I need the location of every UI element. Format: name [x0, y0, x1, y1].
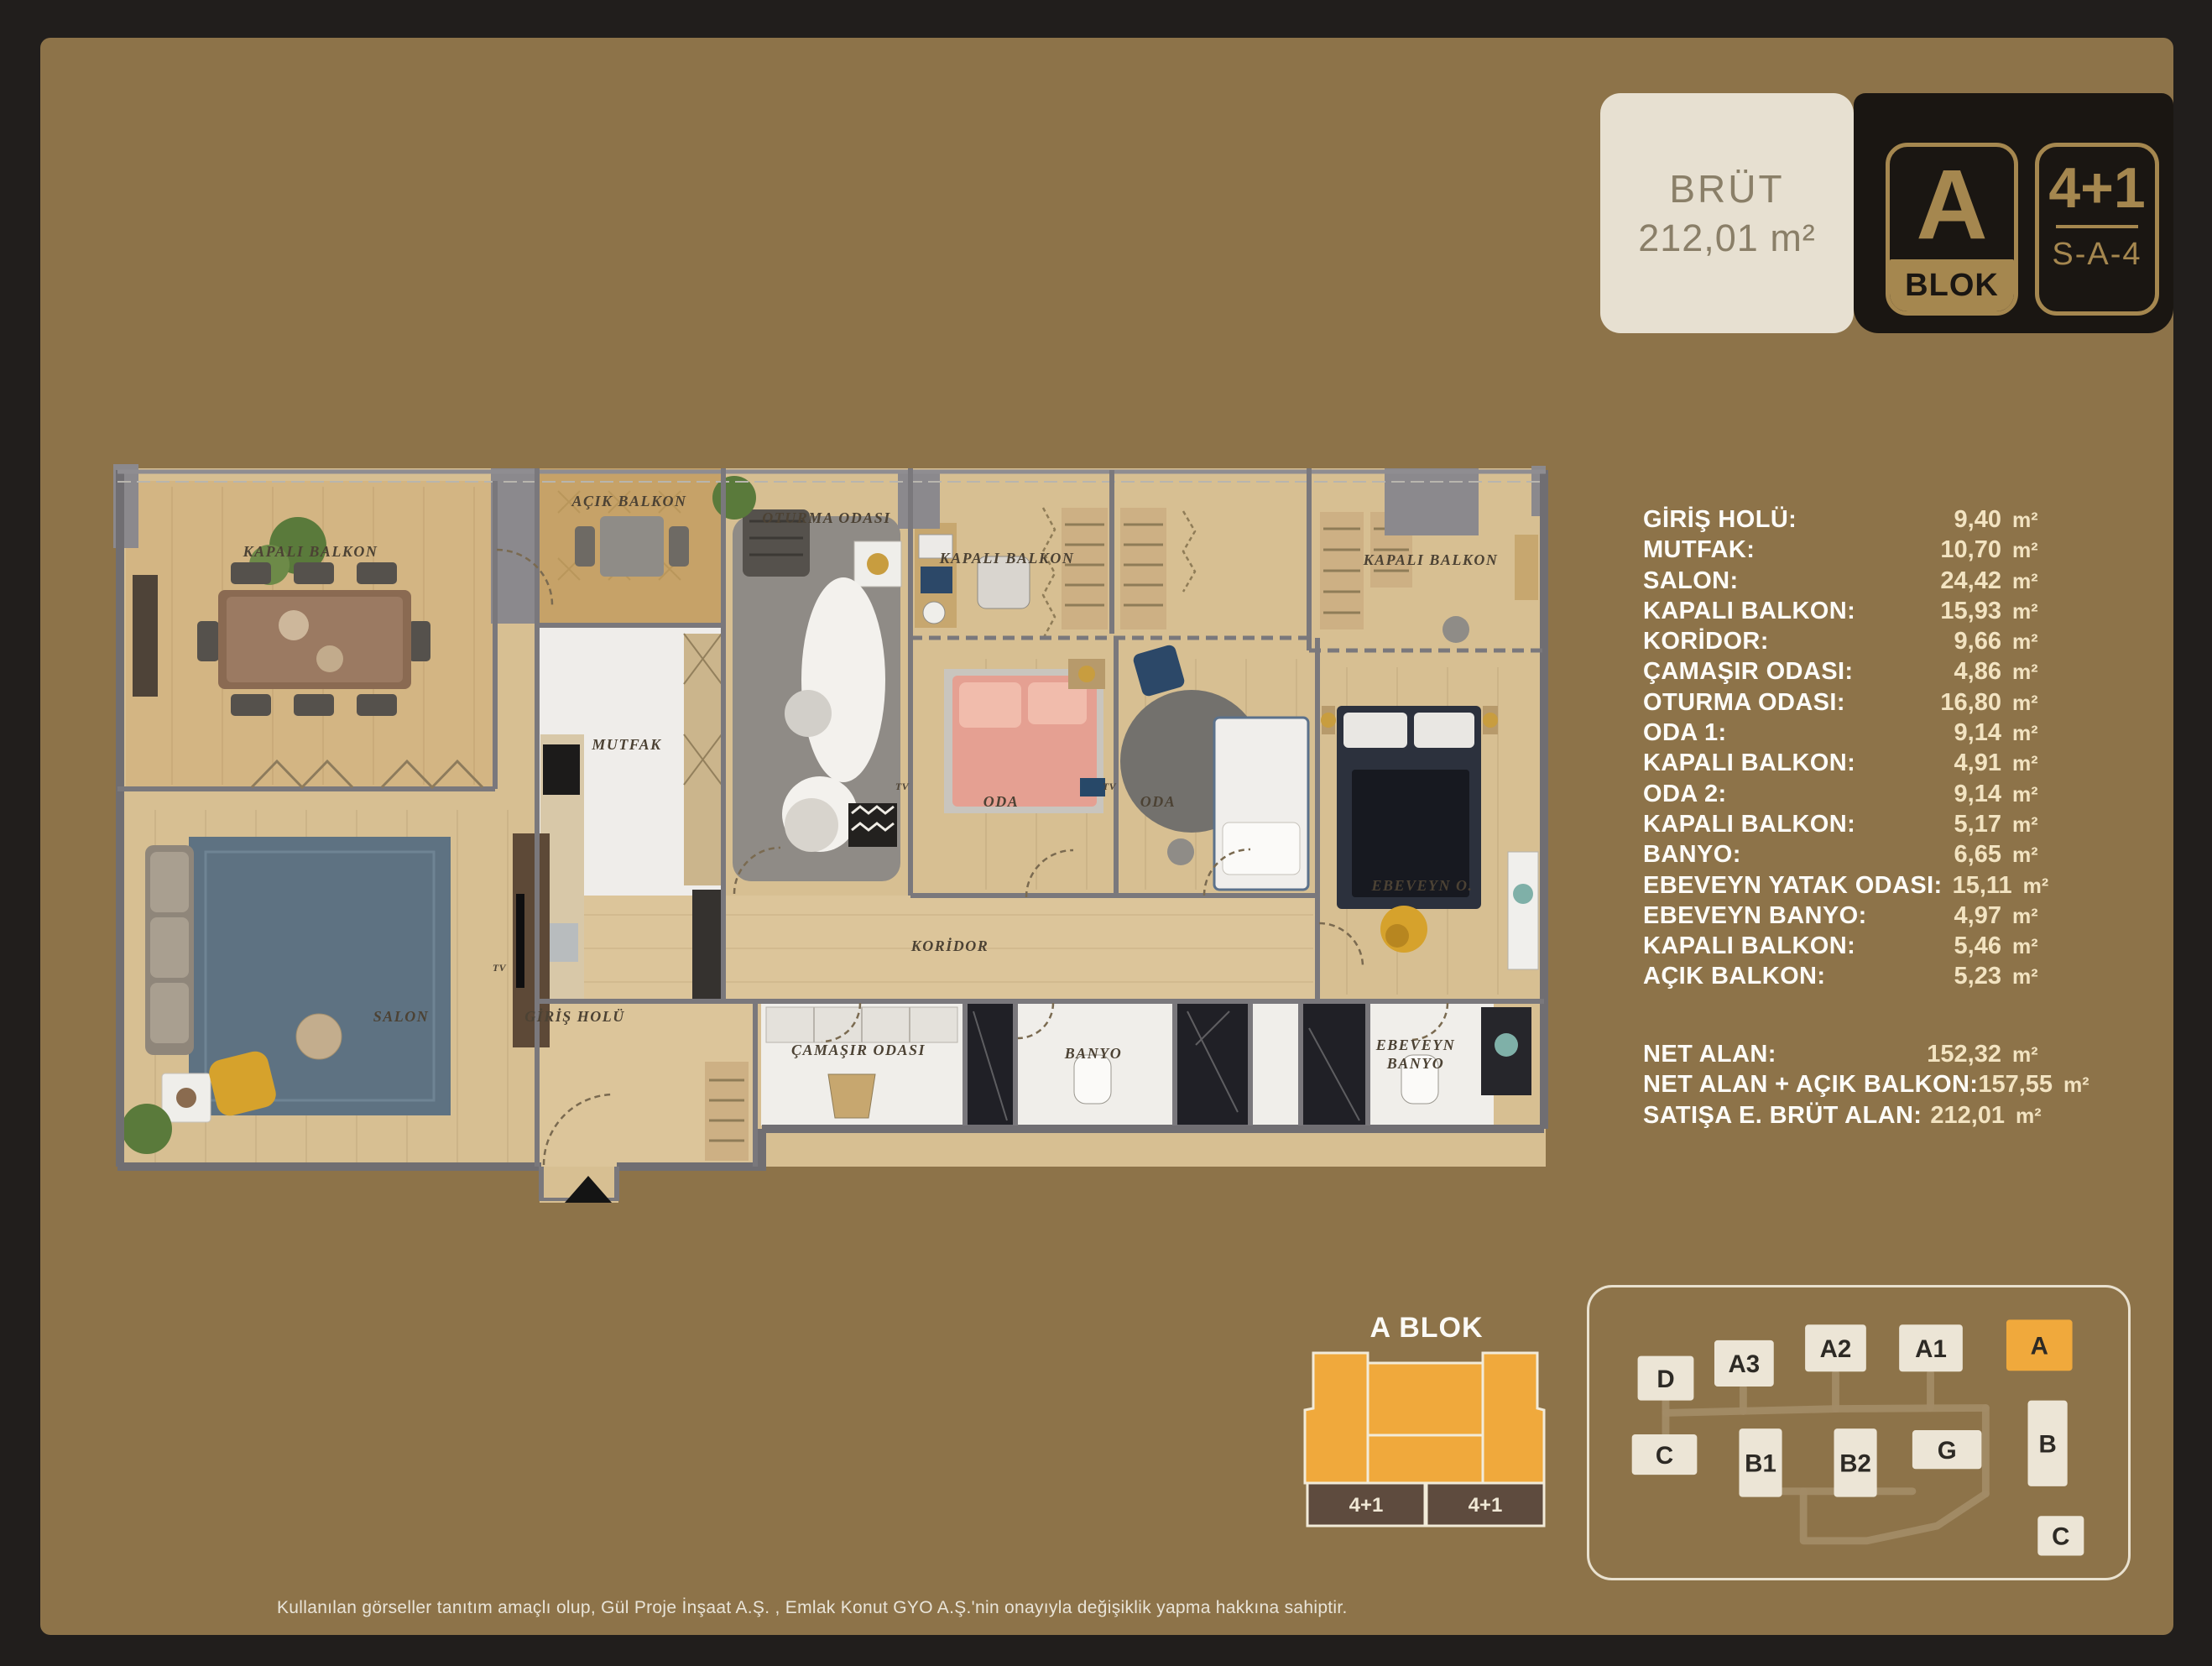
site-building-label: A3 [1729, 1350, 1761, 1378]
sofa-cushion [150, 852, 189, 912]
pillow [1223, 823, 1300, 875]
site-building-b1: B1 [1739, 1428, 1782, 1497]
room-area-unit: m² [2012, 875, 2061, 899]
room-row: SALON:24,42m² [1643, 567, 2061, 598]
block-footprint-title: A BLOK [1292, 1312, 1561, 1345]
room-area-unit: m² [2005, 1105, 2061, 1129]
room-label: AÇIK BALKON: [1643, 963, 1912, 990]
room-label: OTURMA ODASI: [1643, 689, 1912, 717]
room-row: KORİDOR:9,66m² [1643, 628, 2061, 658]
marble-coffee-table [785, 690, 832, 737]
room-area-unit: m² [2001, 600, 2061, 624]
balcony-table [600, 516, 664, 577]
area-summary-list: NET ALAN:152,32m²NET ALAN + AÇIK BALKON:… [1643, 1041, 2061, 1132]
gross-area-label: BRÜT [1669, 166, 1784, 212]
plan-room-label: AÇIK BALKON [571, 493, 686, 509]
room-label: KAPALI BALKON: [1643, 932, 1912, 960]
room-row: BANYO:6,65m² [1643, 841, 2061, 871]
block-word: BLOK [1890, 259, 2014, 311]
plan-room-label: EBEVEYN O. [1370, 877, 1473, 894]
room-area-unit: m² [2053, 1073, 2089, 1098]
room-row: MUTFAK:10,70m² [1643, 536, 2061, 567]
site-building-c: C [1632, 1434, 1698, 1475]
lamp [1321, 713, 1336, 728]
room-label: EBEVEYN BANYO: [1643, 902, 1912, 930]
room-label: KORİDOR: [1643, 628, 1912, 655]
room-area-value: 5,23 [1912, 963, 2001, 990]
plan-room-label: OTURMA ODASI [762, 509, 891, 526]
tv-icon [1080, 778, 1105, 796]
stool [923, 602, 945, 624]
lamp [1483, 713, 1498, 728]
plan-room-label: BANYO [1064, 1045, 1123, 1062]
room-label: KAPALI BALKON: [1643, 749, 1912, 777]
unit-box-label: 4+1 [1469, 1494, 1503, 1517]
laundry-stool [828, 1074, 875, 1118]
room-row: ODA 2:9,14m² [1643, 781, 2061, 811]
room-area-value: 6,65 [1912, 841, 2001, 869]
room-row: EBEVEYN YATAK ODASI:15,11m² [1643, 872, 2061, 902]
site-building-b2: B2 [1834, 1428, 1877, 1497]
room-label: SATIŞA E. BRÜT ALAN: [1643, 1102, 1922, 1130]
pillow [959, 682, 1021, 728]
sofa-cushion [150, 983, 189, 1043]
balcony-chair [669, 526, 689, 567]
room-label: ÇAMAŞIR ODASI: [1643, 658, 1912, 686]
site-building-label: G [1938, 1437, 1957, 1465]
room-area-unit: m² [2001, 570, 2061, 594]
table-setting [316, 645, 343, 672]
bath-white-strip [1250, 1001, 1301, 1125]
room-row: AÇIK BALKON:5,23m² [1643, 963, 2061, 993]
cooktop [543, 744, 580, 795]
toilet-icon [1074, 1055, 1111, 1104]
room-row: OTURMA ODASI:16,80m² [1643, 689, 2061, 719]
plan-room-label: KAPALI BALKON [939, 550, 1075, 567]
badge-panel: A BLOK 4+1 S-A-4 [1854, 93, 2173, 333]
footprint-right-wing [1483, 1353, 1544, 1483]
site-building-label: C [2052, 1523, 2069, 1551]
room-area-value: 10,70 [1912, 536, 2001, 564]
room-area-value: 9,66 [1912, 628, 2001, 655]
vanity [1508, 852, 1538, 969]
tv-icon [516, 894, 524, 988]
plan-room-label: TV [895, 781, 910, 792]
room-row: EBEVEYN BANYO:4,97m² [1643, 902, 2061, 932]
plan-room-label: TV [1103, 781, 1117, 792]
pillow [1343, 713, 1407, 748]
room-area-value: 9,14 [1912, 781, 2001, 808]
site-building-c: C [2037, 1516, 2084, 1555]
site-building-a3: A3 [1714, 1340, 1774, 1387]
dining-table-top [227, 597, 403, 682]
plan-room-label: ODA [983, 793, 1020, 810]
room-label: NET ALAN + AÇIK BALKON: [1643, 1071, 1978, 1099]
room-area-value: 157,55 [1978, 1071, 2053, 1099]
shower-dark-2 [1301, 1001, 1368, 1125]
plan-room-label: KORİDOR [910, 937, 989, 954]
plan-room-label: MUTFAK [591, 736, 662, 753]
vase [176, 1088, 196, 1108]
block-badge: A BLOK [1886, 143, 2018, 316]
room-area-value: 9,40 [1912, 506, 2001, 534]
room-area-unit: m² [2001, 752, 2061, 776]
site-building-label: D [1656, 1366, 1674, 1393]
plan-room-label: KAPALI BALKON [1363, 551, 1499, 568]
coffee-table [296, 1014, 342, 1059]
site-building-label: A [2031, 1333, 2048, 1360]
accent-chair [1385, 924, 1409, 948]
room-label: EBEVEYN YATAK ODASI: [1643, 872, 1943, 900]
footprint-middle [1368, 1363, 1483, 1483]
room-area-unit: m² [2001, 661, 2061, 685]
room-area-unit: m² [2001, 1043, 2061, 1068]
pillow [1414, 713, 1474, 748]
room-row: NET ALAN + AÇIK BALKON:157,55m² [1643, 1071, 2061, 1101]
room-label: SALON: [1643, 567, 1912, 595]
room-area-unit: m² [2001, 965, 2061, 990]
room-area-unit: m² [2001, 509, 2061, 533]
block-letter: A [1916, 147, 1987, 259]
plant-icon [122, 1104, 172, 1154]
plan-room-label: EBEVEYN [1375, 1037, 1456, 1053]
hall-closet [705, 1062, 749, 1161]
room-label: KAPALI BALKON: [1643, 811, 1912, 838]
site-building-b: B [2028, 1401, 2068, 1486]
room-area-value: 4,91 [1912, 749, 2001, 777]
disclaimer-text: Kullanılan görseller tanıtım amaçlı olup… [277, 1598, 1348, 1618]
room-area-value: 9,14 [1912, 719, 2001, 747]
site-building-a: A [2006, 1319, 2073, 1371]
room-area-value: 4,86 [1912, 658, 2001, 686]
site-building-a1: A1 [1899, 1324, 1963, 1371]
plan-room-label: SALON [373, 1008, 430, 1025]
site-building-a2: A2 [1805, 1324, 1866, 1371]
room-label: ODA 2: [1643, 781, 1912, 808]
room-area-unit: m² [2001, 843, 2061, 868]
gross-area-value: 212,01 m² [1638, 217, 1816, 260]
room-area-unit: m² [2001, 813, 2061, 838]
room-area-value: 4,97 [1912, 902, 2001, 930]
unit-type-badge: 4+1 S-A-4 [2035, 143, 2159, 316]
room-row: KAPALI BALKON:5,46m² [1643, 932, 2061, 963]
room-row: ÇAMAŞIR ODASI:4,86m² [1643, 658, 2061, 688]
room-area-unit: m² [2001, 630, 2061, 655]
plan-room-label: ÇAMAŞIR ODASI [791, 1042, 926, 1058]
badge-divider [2056, 225, 2138, 228]
room-area-value: 212,01 [1922, 1102, 2005, 1130]
room-label: ODA 1: [1643, 719, 1912, 747]
sofa-cushion [150, 917, 189, 978]
site-building-label: C [1656, 1442, 1673, 1470]
site-plan-box: DA3A2A1ACB1B2GBC [1587, 1285, 2131, 1580]
room-row: KAPALI BALKON:15,93m² [1643, 598, 2061, 628]
room-row: KAPALI BALKON:5,17m² [1643, 811, 2061, 841]
room-area-value: 5,46 [1912, 932, 2001, 960]
site-building-g: G [1912, 1430, 1982, 1469]
room-row: ODA 1:9,14m² [1643, 719, 2061, 749]
vase [867, 553, 889, 575]
room-area-unit: m² [2001, 692, 2061, 716]
room-area-value: 15,11 [1943, 872, 2012, 900]
site-building-label: B1 [1745, 1450, 1776, 1478]
desk-chair [921, 567, 952, 593]
room-area-unit: m² [2001, 539, 2061, 563]
stool [1442, 616, 1469, 643]
room-area-value: 15,93 [1912, 598, 2001, 625]
unit-code: S-A-4 [2052, 237, 2142, 273]
unit-box-label: 4+1 [1349, 1494, 1384, 1517]
site-plan: DA3A2A1ACB1B2GBC [1589, 1287, 2128, 1578]
sideboard [133, 575, 158, 697]
room-row: SATIŞA E. BRÜT ALAN:212,01m² [1643, 1102, 2061, 1132]
floor-plan: KAPALI BALKONAÇIK BALKONOTURMA ODASIKAPA… [105, 457, 1552, 1213]
plan-room-label: ODA [1140, 793, 1176, 810]
plan-room-label: KAPALI BALKON [243, 543, 378, 560]
plan-room-label: BANYO [1386, 1055, 1445, 1072]
unit-type: 4+1 [2048, 157, 2145, 220]
room-area-list: GİRİŞ HOLÜ:9,40m²MUTFAK:10,70m²SALON:24,… [1643, 506, 2061, 994]
room-area-unit: m² [2001, 783, 2061, 807]
site-building-label: A1 [1915, 1335, 1947, 1363]
stool [1167, 838, 1194, 865]
room-area-unit: m² [2001, 935, 2061, 959]
sink [1513, 884, 1533, 904]
site-building-label: A2 [1820, 1335, 1852, 1363]
marble-coffee-table [785, 798, 838, 852]
sink [1495, 1033, 1518, 1057]
room-label: MUTFAK: [1643, 536, 1912, 564]
room-row: GİRİŞ HOLÜ:9,40m² [1643, 506, 2061, 536]
footprint-left-wing [1305, 1353, 1368, 1483]
brochure-page: BRÜT 212,01 m² A BLOK 4+1 S-A-4 GİRİŞ HO… [0, 0, 2212, 1666]
room-label: NET ALAN: [1643, 1041, 1912, 1068]
block-footprint-diagram: 4+1 4+1 [1292, 1343, 1561, 1544]
room-area-value: 5,17 [1912, 811, 2001, 838]
room-area-unit: m² [2001, 722, 2061, 746]
room-row: KAPALI BALKON:4,91m² [1643, 749, 2061, 780]
room-label: BANYO: [1643, 841, 1912, 869]
site-building-d: D [1638, 1356, 1694, 1401]
site-building-label: B [2038, 1431, 2056, 1459]
gross-area-box: BRÜT 212,01 m² [1600, 93, 1854, 333]
room-row: NET ALAN:152,32m² [1643, 1041, 2061, 1071]
room-area-value: 16,80 [1912, 689, 2001, 717]
curved-sofa [801, 577, 885, 782]
lamp [1078, 666, 1095, 682]
fridge-column [692, 890, 723, 999]
balcony-chair [575, 526, 595, 567]
balcony-bench [1515, 535, 1538, 600]
site-building-label: B2 [1839, 1450, 1871, 1478]
plan-room-label: GİRİŞ HOLÜ [524, 1007, 625, 1025]
room-label: GİRİŞ HOLÜ: [1643, 506, 1912, 534]
room-area-value: 24,42 [1912, 567, 2001, 595]
room-label: KAPALI BALKON: [1643, 598, 1912, 625]
plan-room-label: TV [493, 962, 507, 974]
room-area-value: 152,32 [1912, 1041, 2001, 1068]
room-area-unit: m² [2001, 905, 2061, 929]
table-setting [279, 610, 309, 640]
